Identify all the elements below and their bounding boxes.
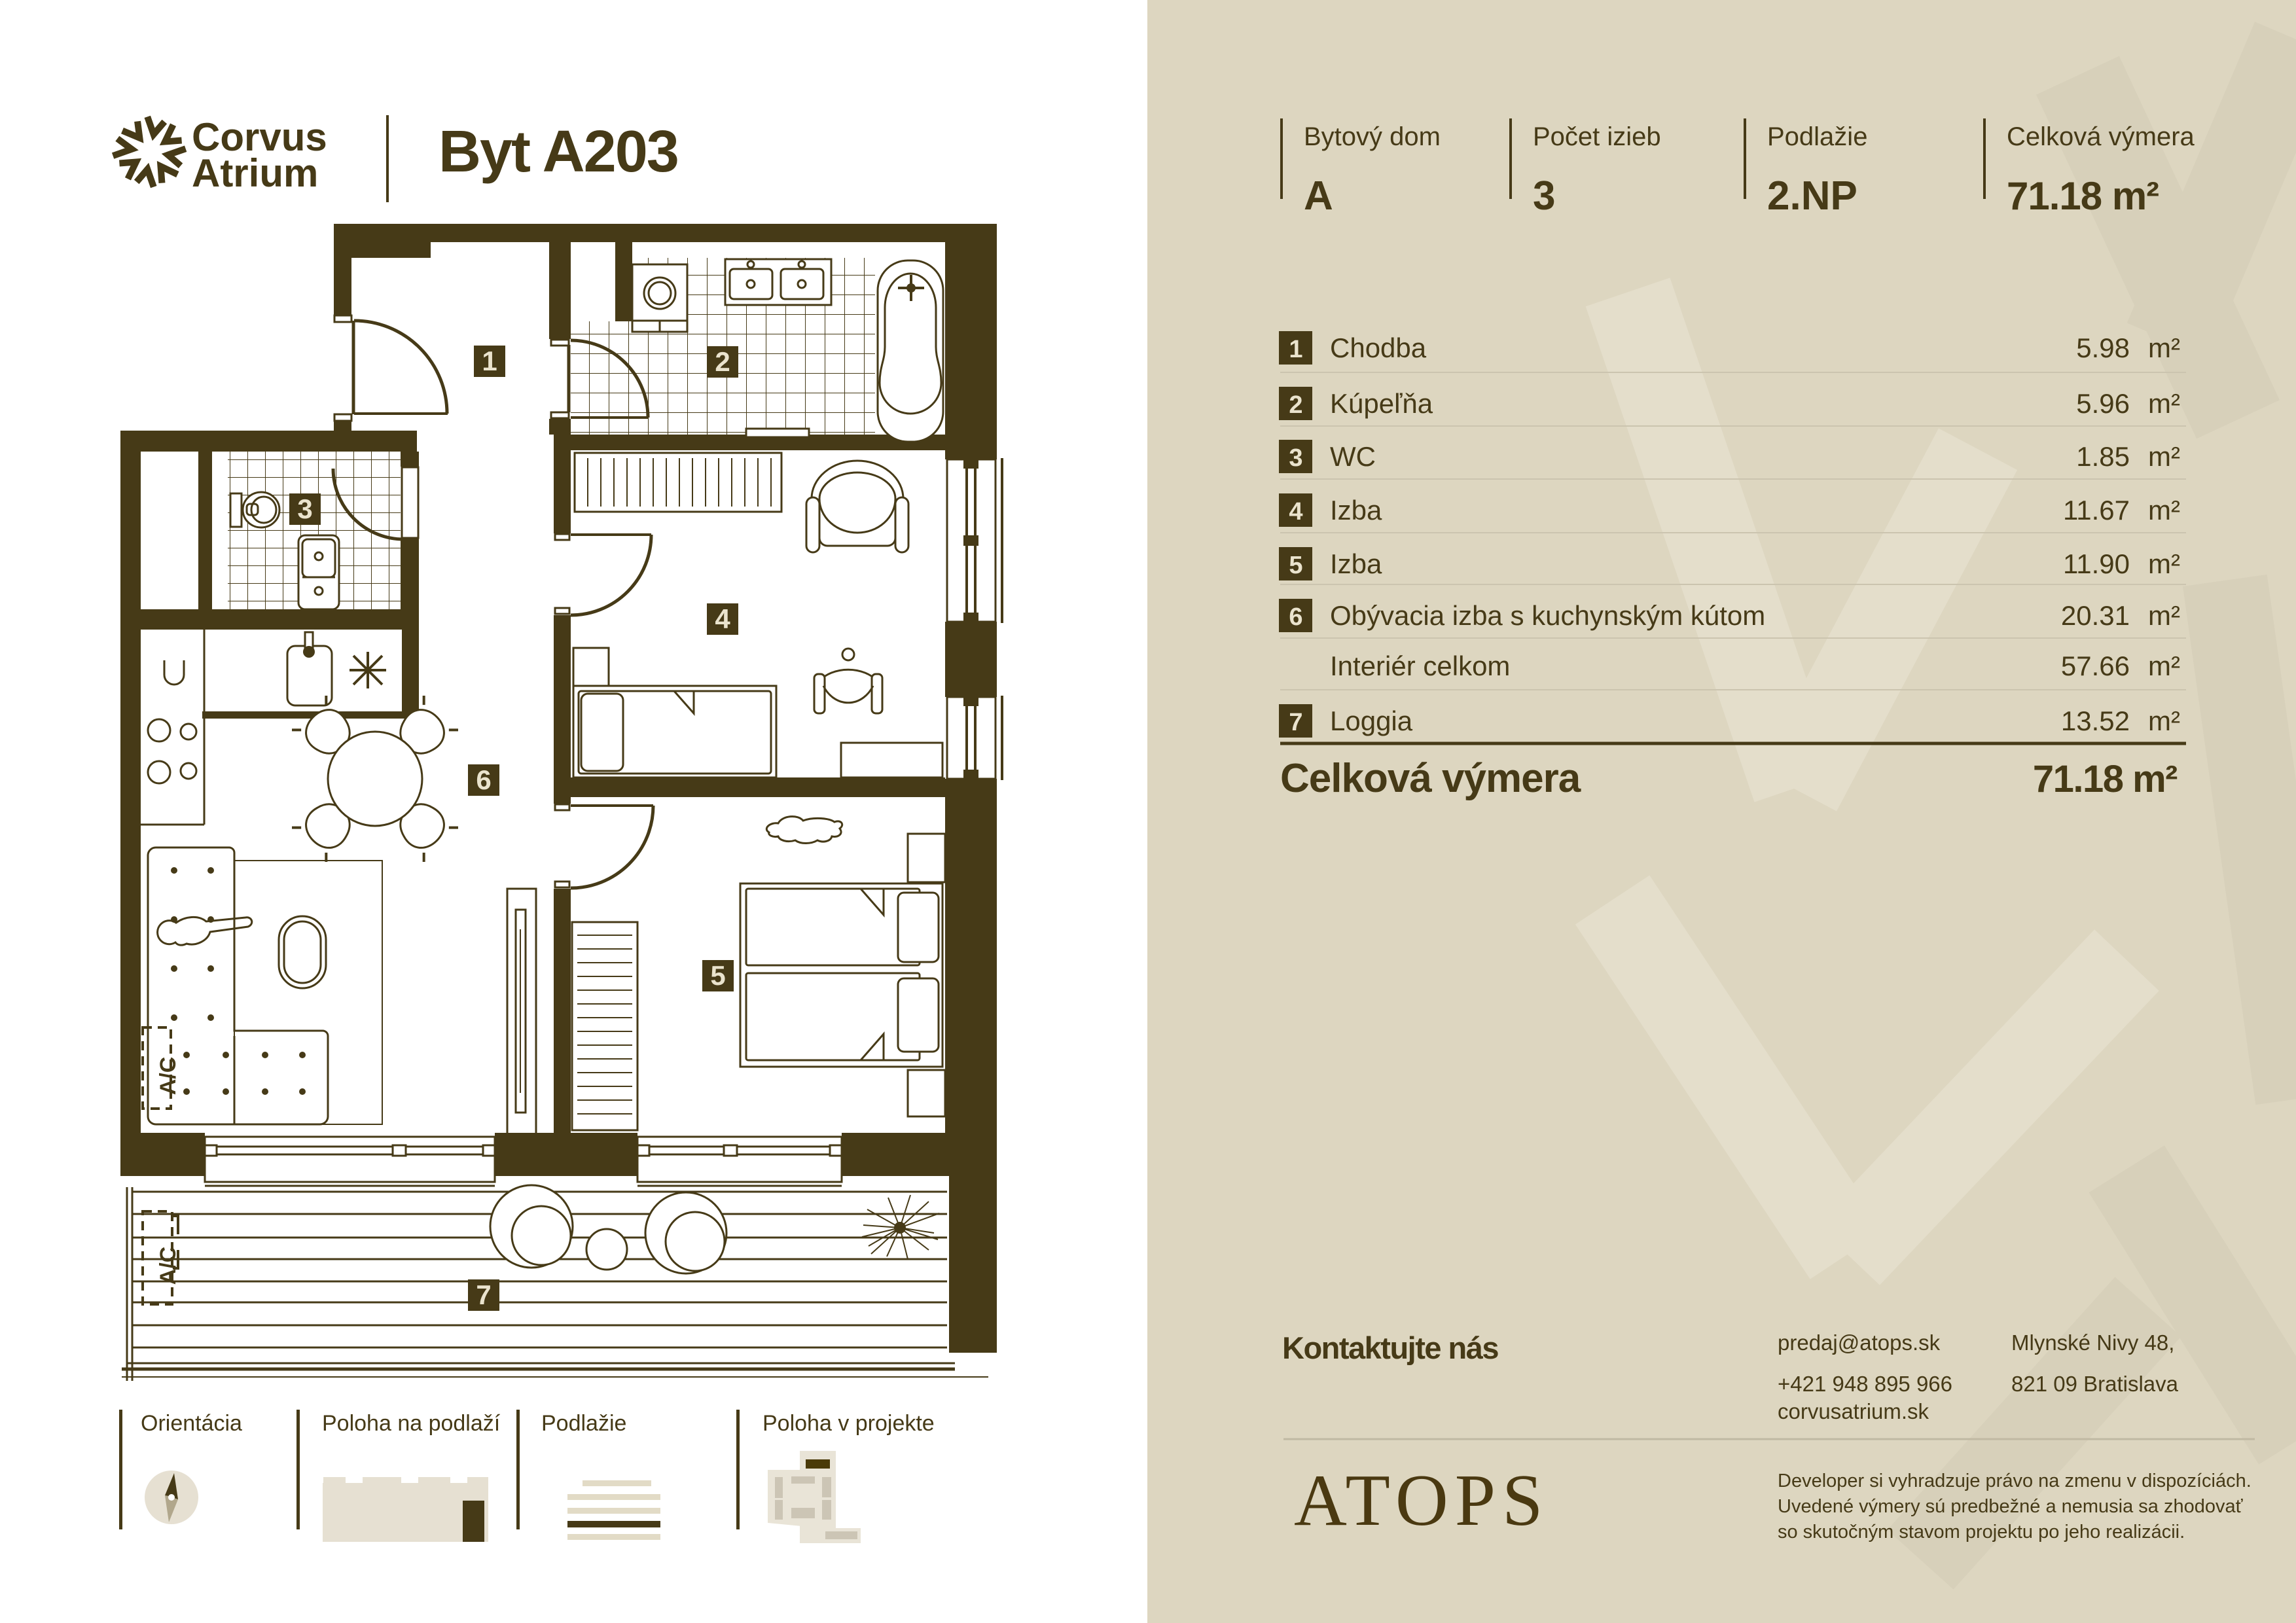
- svg-text:57.66: 57.66: [2061, 651, 2130, 681]
- svg-text:Bytový dom: Bytový dom: [1304, 122, 1441, 151]
- svg-text:5: 5: [1289, 552, 1302, 579]
- svg-text:3: 3: [1533, 173, 1555, 219]
- svg-text:2: 2: [1289, 391, 1302, 419]
- svg-text:6: 6: [476, 764, 491, 795]
- svg-text:Chodba: Chodba: [1330, 332, 1427, 363]
- svg-text:821 09 Bratislava: 821 09 Bratislava: [2011, 1372, 2179, 1396]
- svg-text:m²: m²: [2148, 548, 2180, 579]
- svg-text:Poloha v projekte: Poloha v projekte: [762, 1411, 935, 1436]
- svg-text:71.18 m²: 71.18 m²: [2033, 758, 2178, 800]
- svg-text:71.18 m²: 71.18 m²: [2007, 174, 2159, 218]
- svg-text:m²: m²: [2148, 495, 2180, 526]
- svg-text:Podlažie: Podlažie: [1767, 122, 1867, 151]
- svg-text:4: 4: [1289, 498, 1302, 526]
- svg-text:m²: m²: [2148, 441, 2180, 472]
- svg-text:predaj@atops.sk: predaj@atops.sk: [1778, 1330, 1941, 1355]
- svg-text:20.31: 20.31: [2061, 600, 2130, 631]
- svg-text:11.90: 11.90: [2063, 548, 2130, 579]
- svg-text:5.98: 5.98: [2076, 332, 2130, 363]
- svg-text:4: 4: [715, 603, 730, 634]
- svg-text:ATOPS: ATOPS: [1294, 1460, 1549, 1541]
- svg-text:Byt A203: Byt A203: [439, 119, 678, 185]
- svg-text:Izba: Izba: [1330, 495, 1382, 526]
- svg-text:7: 7: [476, 1279, 491, 1310]
- svg-text:corvusatrium.sk: corvusatrium.sk: [1778, 1399, 1929, 1423]
- svg-text:m²: m²: [2148, 332, 2180, 363]
- svg-text:Uvedené výmery sú predbežné a: Uvedené výmery sú predbežné a nemusia sa…: [1778, 1496, 2244, 1517]
- svg-text:Podlažie: Podlažie: [541, 1411, 626, 1436]
- svg-text:A: A: [1304, 173, 1333, 219]
- svg-text:7: 7: [1289, 709, 1302, 736]
- svg-text:Kúpeľňa: Kúpeľňa: [1330, 388, 1433, 419]
- svg-text:+421 948 895 966: +421 948 895 966: [1778, 1372, 1952, 1396]
- svg-text:Atrium: Atrium: [192, 151, 318, 195]
- svg-text:WC: WC: [1330, 441, 1376, 472]
- svg-text:m²: m²: [2148, 705, 2180, 736]
- svg-text:Mlynské Nivy 48,: Mlynské Nivy 48,: [2011, 1330, 2174, 1355]
- svg-text:Počet izieb: Počet izieb: [1533, 122, 1661, 151]
- svg-text:3: 3: [297, 493, 312, 524]
- svg-text:Celková výmera: Celková výmera: [1280, 756, 1581, 801]
- svg-text:m²: m²: [2148, 651, 2180, 681]
- svg-text:13.52: 13.52: [2061, 705, 2130, 736]
- svg-text:11.67: 11.67: [2063, 495, 2130, 526]
- svg-text:Izba: Izba: [1330, 548, 1382, 579]
- svg-text:m²: m²: [2148, 600, 2180, 631]
- svg-text:so skutočným stavom projektu p: so skutočným stavom projektu po jeho rea…: [1778, 1522, 2185, 1543]
- svg-text:2: 2: [715, 346, 730, 377]
- svg-text:1: 1: [482, 346, 497, 376]
- svg-text:6: 6: [1289, 603, 1302, 631]
- svg-text:A/C: A/C: [156, 1057, 181, 1096]
- svg-text:m²: m²: [2148, 388, 2180, 419]
- svg-text:1.85: 1.85: [2076, 441, 2130, 472]
- svg-text:Developer si vyhradzuje právo: Developer si vyhradzuje právo na zmenu v…: [1778, 1471, 2251, 1491]
- svg-text:Celková výmera: Celková výmera: [2007, 122, 2195, 151]
- svg-text:5: 5: [710, 960, 725, 991]
- svg-text:Obývacia izba s kuchynským kút: Obývacia izba s kuchynským kútom: [1330, 600, 1765, 631]
- svg-text:5.96: 5.96: [2076, 388, 2130, 419]
- svg-text:3: 3: [1289, 444, 1302, 472]
- svg-text:Loggia: Loggia: [1330, 705, 1413, 736]
- svg-text:Kontaktujte nás: Kontaktujte nás: [1282, 1330, 1498, 1365]
- svg-text:1: 1: [1289, 336, 1302, 363]
- svg-text:Interiér celkom: Interiér celkom: [1330, 651, 1510, 681]
- svg-text:2.NP: 2.NP: [1767, 173, 1857, 219]
- svg-text:Orientácia: Orientácia: [141, 1411, 242, 1436]
- svg-text:Poloha na podlaží: Poloha na podlaží: [322, 1411, 501, 1436]
